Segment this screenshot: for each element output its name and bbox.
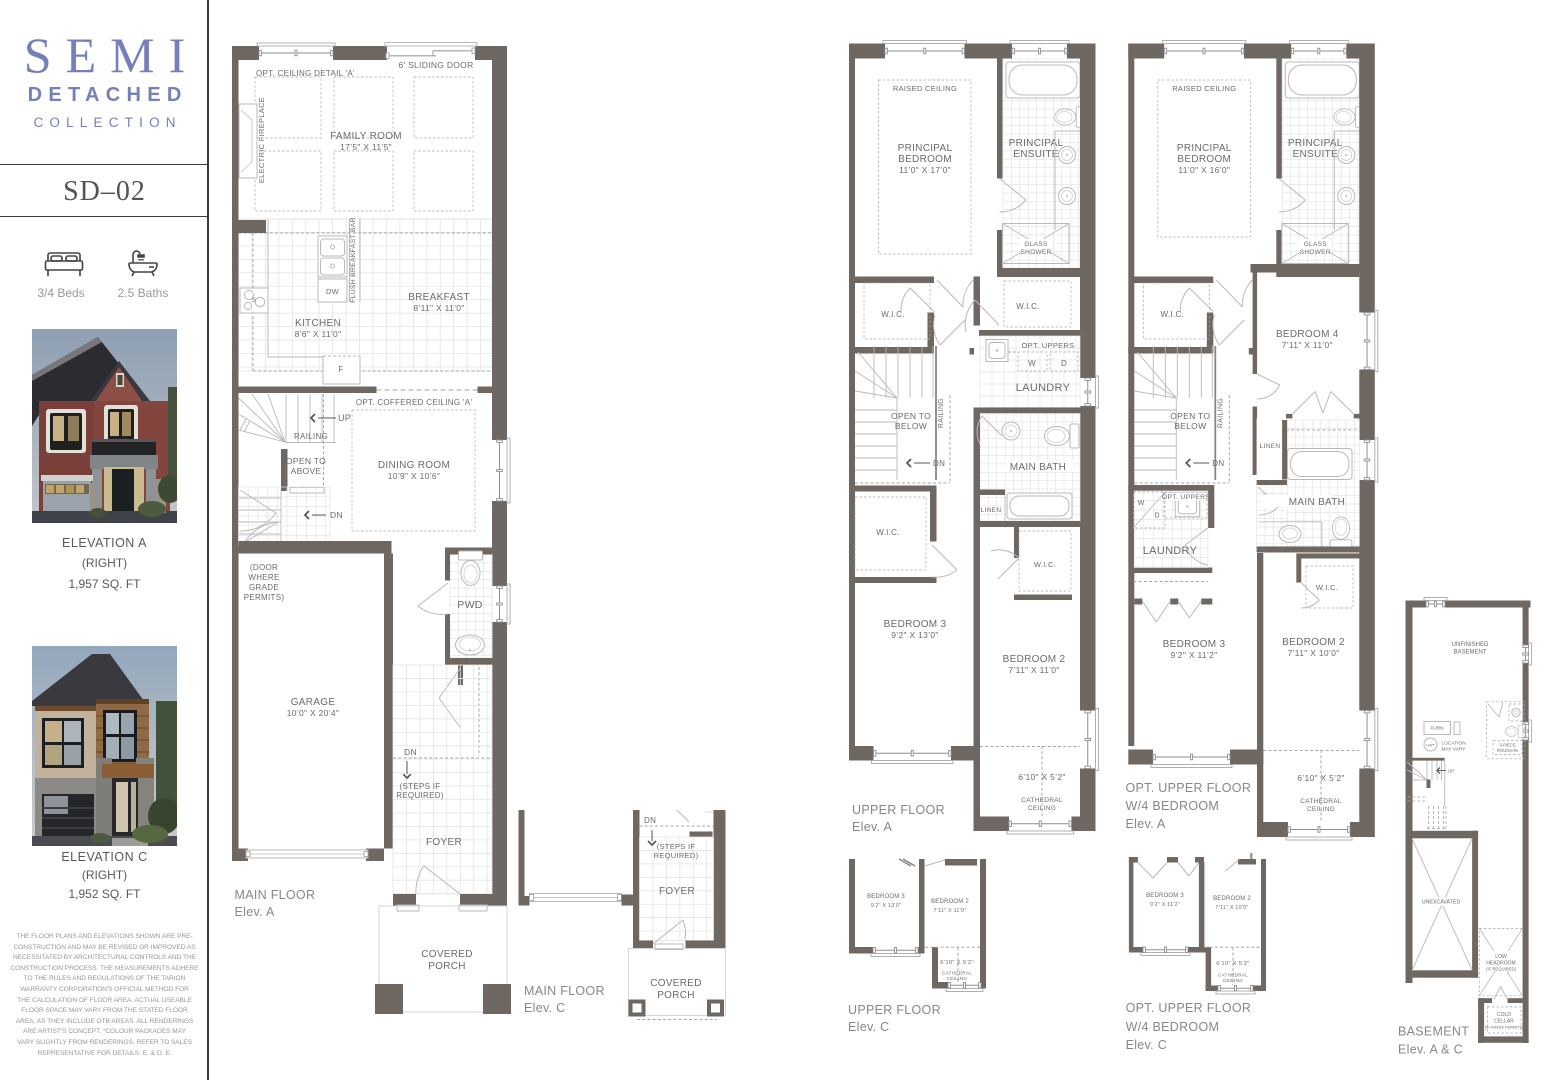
svg-text:BEDROOM 2: BEDROOM 2 (1213, 896, 1251, 902)
svg-text:RAISED CEILING: RAISED CEILING (893, 84, 957, 93)
svg-text:GARAGE: GARAGE (291, 697, 336, 708)
svg-text:OPT. UPPERS: OPT. UPPERS (1022, 341, 1075, 350)
svg-text:BEDROOM 3: BEDROOM 3 (1163, 639, 1226, 650)
svg-text:Elev. A: Elev. A (235, 905, 275, 919)
svg-text:GLASS: GLASS (1304, 241, 1328, 248)
svg-text:MAIN BATH: MAIN BATH (1289, 497, 1345, 508)
svg-text:GLASS: GLASS (1024, 241, 1048, 248)
svg-text:17’5" X 11’5": 17’5" X 11’5" (340, 142, 392, 152)
svg-text:OPEN TO: OPEN TO (286, 456, 326, 466)
svg-text:WHERE: WHERE (248, 573, 279, 582)
svg-text:RAILING: RAILING (294, 432, 328, 441)
svg-text:OPT. UPPERS: OPT. UPPERS (1162, 494, 1210, 501)
svg-text:BELOW: BELOW (895, 421, 927, 431)
svg-text:7’11" X 11’0": 7’11" X 11’0" (1282, 340, 1333, 350)
svg-text:BASEMENT: BASEMENT (1453, 650, 1486, 656)
svg-text:9’2" X 13’0": 9’2" X 13’0" (891, 630, 938, 640)
svg-text:CATHEDRAL: CATHEDRAL (1218, 973, 1248, 978)
svg-text:DN: DN (1212, 459, 1224, 468)
svg-text:BEDROOM 2: BEDROOM 2 (931, 899, 969, 905)
svg-text:UP: UP (1448, 769, 1454, 774)
svg-text:F: F (338, 365, 343, 374)
svg-text:10’9" X 10’6": 10’9" X 10’6" (388, 471, 440, 481)
svg-text:7’11" X 11’0": 7’11" X 11’0" (934, 908, 967, 914)
svg-text:UPPER FLOOR: UPPER FLOOR (852, 803, 945, 817)
svg-text:PERMITS): PERMITS) (244, 593, 285, 602)
svg-text:BEDROOM 3: BEDROOM 3 (1146, 893, 1184, 899)
svg-text:6’10" X 5’2": 6’10" X 5’2" (1297, 773, 1344, 783)
svg-text:BASEMENT: BASEMENT (1398, 1025, 1469, 1039)
svg-text:7’11" X 11’0": 7’11" X 11’0" (1008, 665, 1059, 675)
svg-text:(STEPS IF: (STEPS IF (400, 782, 441, 791)
svg-text:BREAKFAST: BREAKFAST (408, 292, 470, 303)
svg-text:RAISED CEILING: RAISED CEILING (1172, 84, 1236, 93)
svg-text:MAY VARY: MAY VARY (1442, 747, 1467, 753)
svg-text:CEILING: CEILING (947, 976, 968, 981)
svg-text:ABOVE: ABOVE (291, 466, 322, 476)
svg-text:RAILING: RAILING (938, 398, 945, 428)
svg-text:W/4 BEDROOM: W/4 BEDROOM (1126, 799, 1220, 813)
svg-text:(IF REQUIRED): (IF REQUIRED) (1486, 967, 1516, 972)
svg-text:DW: DW (326, 287, 340, 296)
svg-text:SHOWER: SHOWER (1020, 249, 1051, 256)
svg-text:HWT: HWT (1426, 744, 1435, 748)
svg-text:LINEN: LINEN (1260, 443, 1281, 450)
svg-text:BEDROOM 2: BEDROOM 2 (1003, 654, 1066, 665)
svg-text:BELOW: BELOW (1174, 421, 1206, 431)
svg-text:6' SLIDING DOOR: 6' SLIDING DOOR (398, 60, 473, 70)
svg-text:LAUNDRY: LAUNDRY (1016, 382, 1071, 394)
svg-text:(IF GRADE PERMITS): (IF GRADE PERMITS) (1485, 1026, 1524, 1030)
svg-text:PWD: PWD (457, 599, 483, 611)
svg-text:9’2" X 11’2": 9’2" X 11’2" (1171, 650, 1218, 660)
svg-text:MAIN FLOOR: MAIN FLOOR (235, 888, 316, 902)
svg-text:DN: DN (330, 510, 343, 520)
svg-text:COLD: COLD (1497, 1012, 1511, 1018)
svg-text:W.I.C.: W.I.C. (876, 528, 900, 537)
svg-text:ENSUITE: ENSUITE (1013, 149, 1058, 160)
svg-text:11’0" X 17’0": 11’0" X 17’0" (899, 165, 951, 175)
svg-text:UP: UP (338, 413, 351, 423)
svg-text:CELLAR: CELLAR (1494, 1019, 1514, 1025)
svg-text:6’10" X 5’2": 6’10" X 5’2" (1018, 772, 1065, 782)
svg-text:BEDROOM 3: BEDROOM 3 (884, 619, 947, 630)
svg-text:W/4 BEDROOM: W/4 BEDROOM (1126, 1020, 1220, 1034)
svg-text:REQUIRED): REQUIRED) (654, 851, 699, 860)
svg-text:D: D (1061, 359, 1067, 368)
svg-text:UNFINISHED: UNFINISHED (1452, 642, 1489, 648)
svg-text:LAUNDRY: LAUNDRY (1143, 545, 1198, 557)
svg-text:LINEN: LINEN (981, 507, 1002, 514)
svg-text:8’6" X 11’0": 8’6" X 11’0" (295, 329, 342, 339)
svg-text:BEDROOM: BEDROOM (1177, 154, 1231, 165)
svg-text:PORCH: PORCH (657, 990, 695, 1001)
svg-text:BEDROOM: BEDROOM (898, 154, 952, 165)
svg-text:DN: DN (404, 747, 417, 757)
svg-text:CATHEDRAL: CATHEDRAL (1021, 797, 1063, 804)
svg-text:CEILING: CEILING (1223, 978, 1244, 983)
svg-text:OPT. UPPER FLOOR: OPT. UPPER FLOOR (1126, 781, 1252, 795)
svg-text:FLUSH BREAKFAST BAR: FLUSH BREAKFAST BAR (350, 217, 357, 303)
svg-text:FOYER: FOYER (426, 837, 462, 848)
svg-text:OPEN TO: OPEN TO (891, 411, 931, 421)
svg-text:DN: DN (933, 459, 945, 468)
svg-text:CATHEDRAL: CATHEDRAL (942, 971, 972, 976)
svg-text:CEILING: CEILING (1307, 806, 1335, 813)
svg-text:LOW: LOW (1495, 954, 1507, 960)
svg-text:COVERED: COVERED (650, 978, 702, 989)
svg-text:6’10" X 5’2": 6’10" X 5’2" (940, 960, 974, 966)
svg-text:BEDROOM 4: BEDROOM 4 (1276, 329, 1339, 340)
svg-text:W: W (1028, 359, 1036, 368)
svg-text:ENSUITE: ENSUITE (1293, 149, 1338, 160)
svg-text:Elev. C: Elev. C (848, 1020, 889, 1034)
svg-text:PRINCIPAL: PRINCIPAL (1177, 143, 1232, 154)
svg-text:UNEXCAVATED: UNEXCAVATED (1422, 900, 1461, 906)
svg-text:FURN: FURN (1430, 726, 1444, 732)
svg-text:MAIN FLOOR: MAIN FLOOR (524, 984, 605, 998)
svg-text:BEDROOM 3: BEDROOM 3 (867, 894, 905, 900)
svg-text:Elev. A: Elev. A (852, 820, 892, 834)
svg-text:UPPER FLOOR: UPPER FLOOR (848, 1003, 941, 1017)
svg-text:W.I.C.: W.I.C. (1016, 302, 1040, 311)
svg-text:RAILING: RAILING (1217, 398, 1224, 428)
svg-text:Elev. C: Elev. C (524, 1001, 565, 1015)
svg-text:OPT. COFFERED CEILING 'A': OPT. COFFERED CEILING 'A' (356, 398, 473, 407)
svg-text:SHOWER: SHOWER (1300, 249, 1331, 256)
svg-text:BEDROOM 2: BEDROOM 2 (1282, 637, 1345, 648)
svg-text:D: D (1155, 513, 1160, 520)
svg-text:REQUIRED): REQUIRED) (396, 791, 444, 800)
svg-text:8’11" X 11’0": 8’11" X 11’0" (413, 303, 464, 313)
svg-text:S: S (252, 297, 257, 304)
svg-text:Elev. C: Elev. C (1126, 1038, 1167, 1052)
svg-text:W: W (1138, 500, 1145, 507)
svg-text:CEILING: CEILING (1028, 805, 1056, 812)
svg-text:W.I.C.: W.I.C. (1034, 560, 1056, 569)
svg-text:ROUGH-IN: ROUGH-IN (1497, 748, 1518, 753)
svg-text:6’10" X 5’2": 6’10" X 5’2" (1216, 961, 1250, 967)
svg-text:7’11" X 10’0": 7’11" X 10’0" (1288, 648, 1340, 658)
svg-text:FOYER: FOYER (659, 886, 695, 897)
svg-text:(STEPS IF: (STEPS IF (657, 842, 696, 851)
svg-text:ELECTRIC FIREPLACE: ELECTRIC FIREPLACE (257, 97, 266, 183)
svg-text:7’11" X 10’0": 7’11" X 10’0" (1215, 905, 1248, 911)
svg-text:OPT. UPPER FLOOR: OPT. UPPER FLOOR (1126, 1001, 1252, 1015)
svg-text:10’0" X 20’4": 10’0" X 20’4" (287, 708, 339, 718)
svg-text:DN: DN (644, 816, 656, 825)
svg-text:KITCHEN: KITCHEN (295, 318, 341, 329)
svg-text:CATHEDRAL: CATHEDRAL (1300, 798, 1342, 805)
svg-text:MAIN BATH: MAIN BATH (1010, 462, 1066, 473)
svg-text:OPEN TO: OPEN TO (1170, 411, 1210, 421)
svg-text:DINING ROOM: DINING ROOM (378, 460, 450, 471)
svg-text:FAMILY ROOM: FAMILY ROOM (330, 131, 402, 142)
svg-text:(DOOR: (DOOR (250, 563, 278, 572)
svg-text:W.I.C.: W.I.C. (1316, 583, 1338, 592)
svg-text:11’0" X 16’0": 11’0" X 16’0" (1178, 165, 1230, 175)
svg-text:PRINCIPAL: PRINCIPAL (898, 143, 953, 154)
svg-text:9’2" X 11’2": 9’2" X 11’2" (1150, 902, 1180, 908)
svg-text:GRADE: GRADE (249, 583, 279, 592)
svg-text:COVERED: COVERED (421, 949, 473, 960)
svg-text:PORCH: PORCH (428, 961, 466, 972)
svg-text:9’2" X 13’0": 9’2" X 13’0" (871, 903, 901, 909)
svg-text:LOCATION: LOCATION (1442, 741, 1467, 747)
svg-text:3-PIECE: 3-PIECE (1499, 743, 1515, 748)
svg-text:Elev. A: Elev. A (1126, 817, 1166, 831)
svg-text:Elev. A & C: Elev. A & C (1398, 1043, 1463, 1057)
